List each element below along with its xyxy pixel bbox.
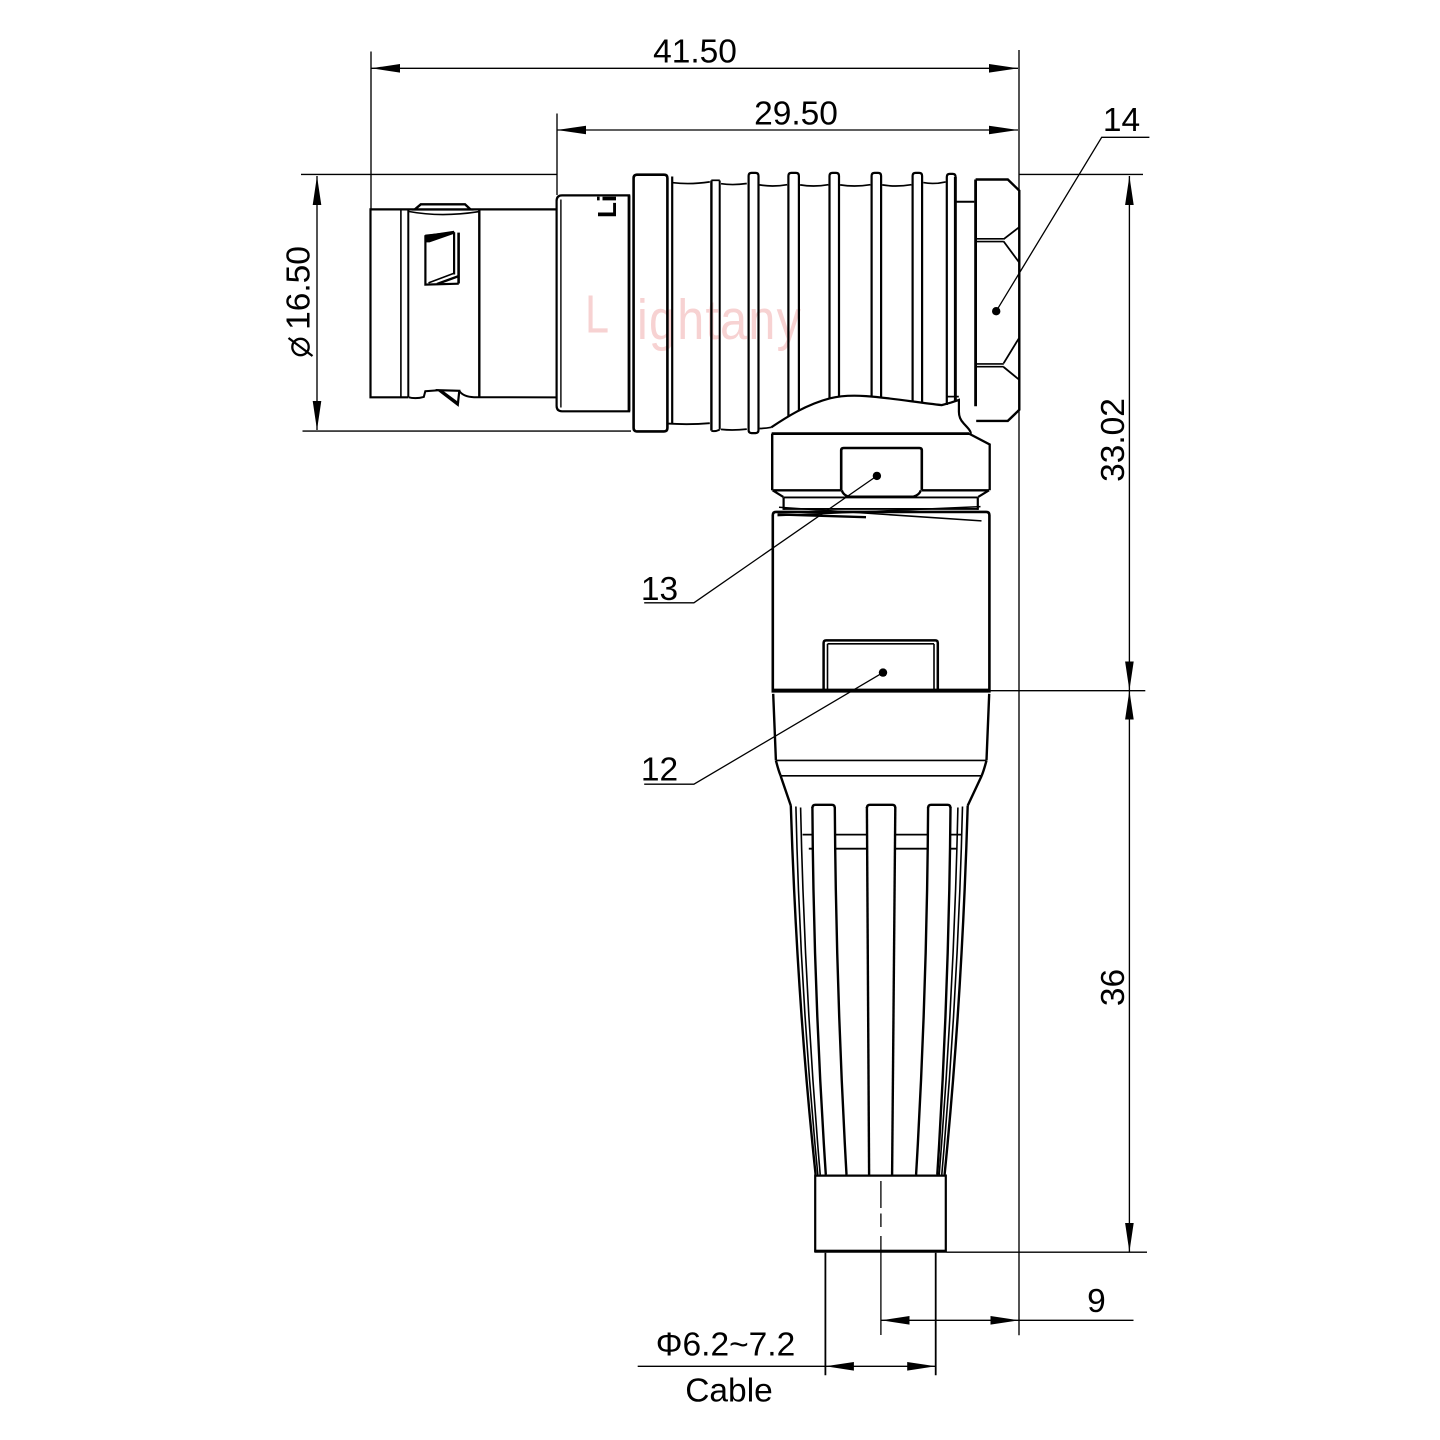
svg-text:41.50: 41.50 (653, 34, 737, 71)
svg-text:29.50: 29.50 (754, 96, 838, 133)
svg-text:9: 9 (1087, 1283, 1106, 1320)
svg-text:L: L (585, 285, 609, 345)
svg-text:Cable: Cable (685, 1373, 773, 1410)
svg-text:36: 36 (1095, 969, 1132, 1006)
svg-text:Lightany: Lightany (592, 109, 622, 218)
svg-text:13: 13 (641, 571, 678, 608)
svg-text:Φ6.2~7.2: Φ6.2~7.2 (656, 1327, 795, 1364)
svg-text:33.02: 33.02 (1095, 398, 1132, 482)
svg-text:14: 14 (1103, 102, 1140, 139)
svg-text:12: 12 (641, 752, 678, 789)
svg-text:16.50: 16.50 (281, 246, 318, 330)
